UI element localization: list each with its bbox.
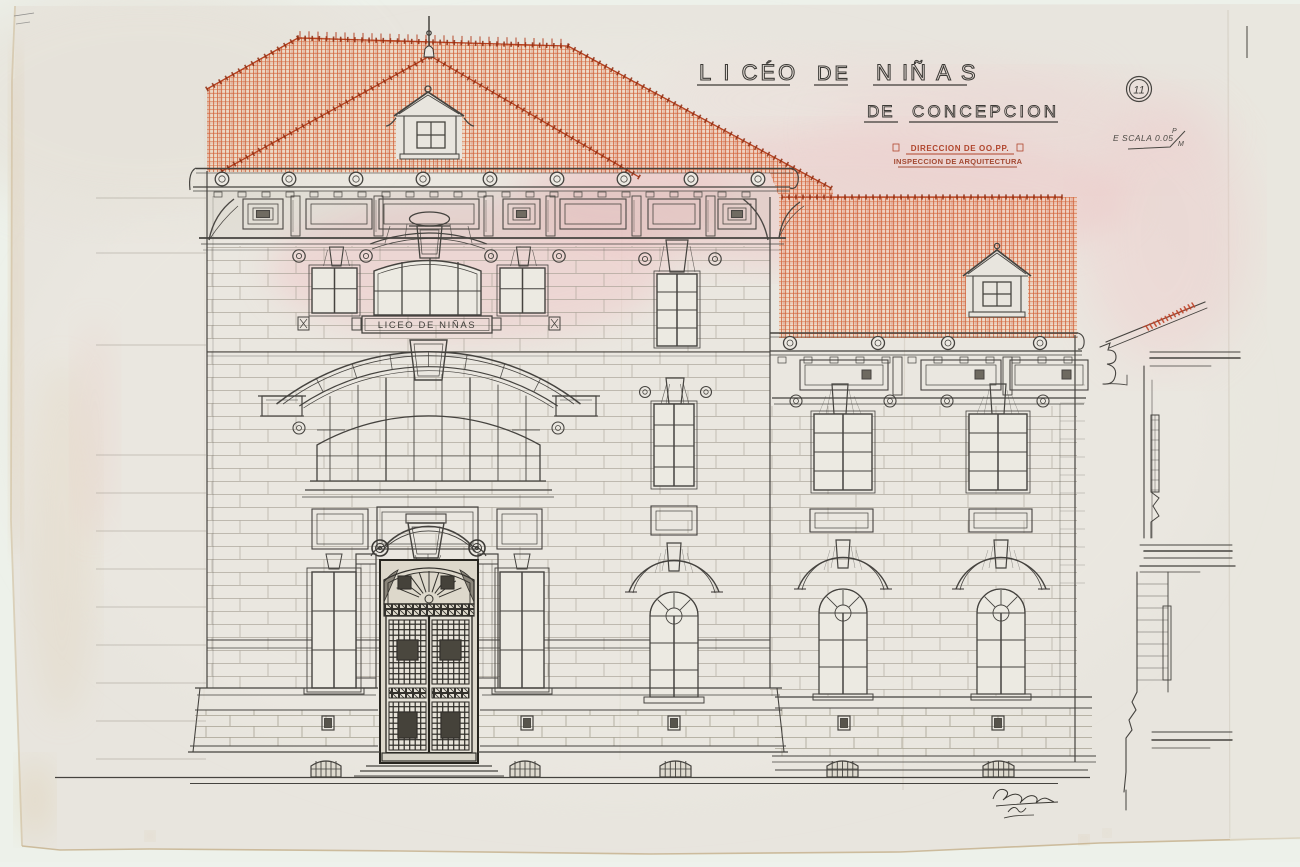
svg-text:LICEO DE NIÑAS: LICEO DE NIÑAS bbox=[378, 320, 476, 331]
svg-text:N IÑ A S: N IÑ A S bbox=[876, 60, 978, 85]
svg-text:11: 11 bbox=[1133, 85, 1144, 97]
svg-text:E SCALA 0.05: E SCALA 0.05 bbox=[1113, 133, 1174, 143]
svg-text:INSPECCION DE ARQUITECTURA: INSPECCION DE ARQUITECTURA bbox=[894, 157, 1023, 166]
svg-text:DE: DE bbox=[867, 102, 895, 121]
svg-text:P: P bbox=[1172, 128, 1177, 135]
svg-text:DIRECCION DE OO.PP.: DIRECCION DE OO.PP. bbox=[911, 144, 1009, 153]
svg-text:L I CÉO: L I CÉO bbox=[699, 60, 798, 85]
svg-text:DE: DE bbox=[817, 63, 851, 85]
svg-text:CONCEPCION: CONCEPCION bbox=[912, 102, 1059, 121]
svg-text:M: M bbox=[1178, 141, 1184, 148]
